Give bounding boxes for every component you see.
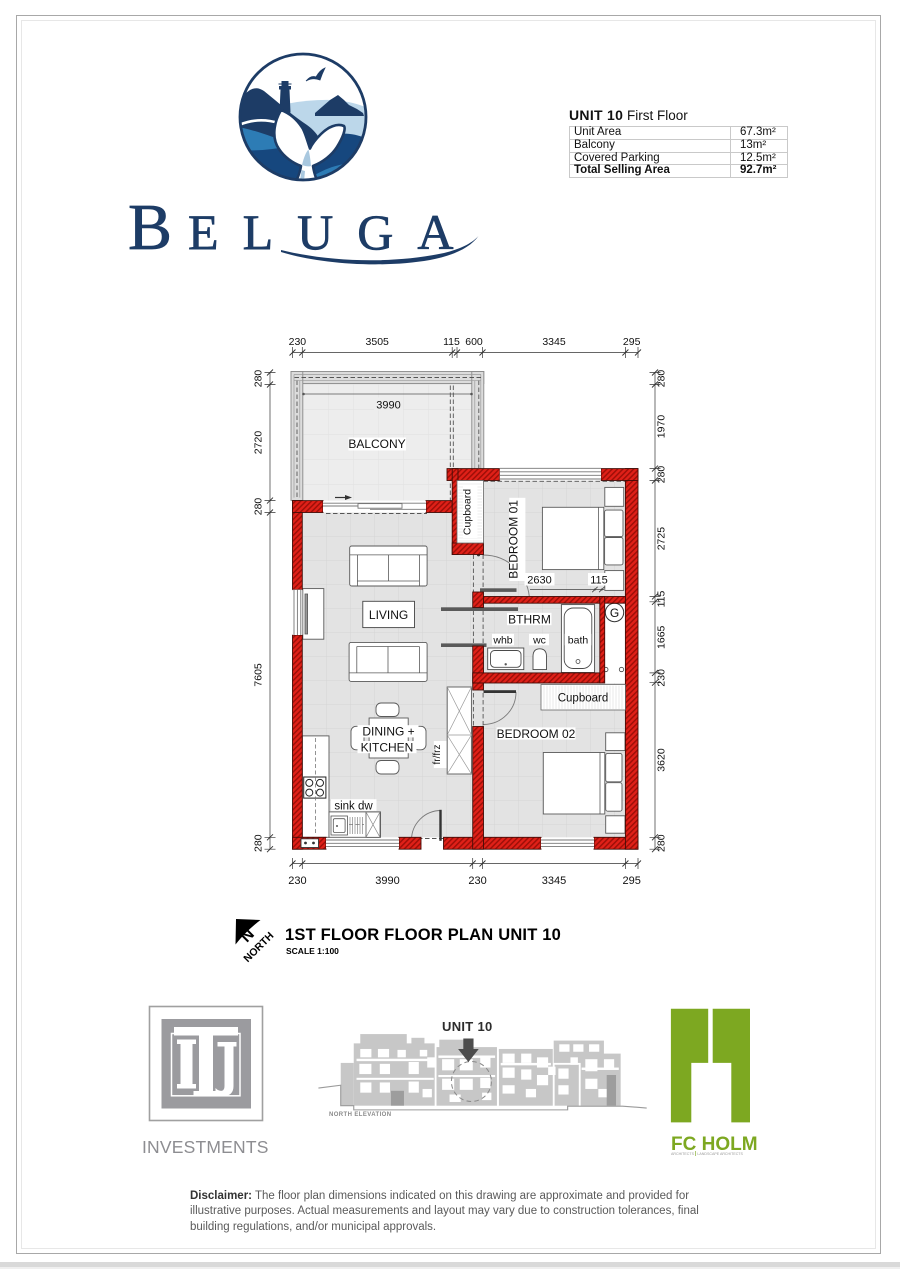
svg-text:3505: 3505 bbox=[366, 336, 390, 348]
svg-text:bath: bath bbox=[568, 635, 589, 647]
svg-text:BTHRM: BTHRM bbox=[508, 612, 551, 626]
svg-text:2720: 2720 bbox=[253, 431, 265, 455]
svg-text:115: 115 bbox=[656, 590, 668, 607]
svg-text:sink dw: sink dw bbox=[334, 801, 373, 813]
svg-text:3345: 3345 bbox=[542, 336, 566, 348]
svg-text:BALCONY: BALCONY bbox=[348, 437, 405, 451]
svg-text:295: 295 bbox=[623, 336, 641, 348]
svg-text:KITCHEN: KITCHEN bbox=[361, 741, 414, 755]
svg-text:Cupboard: Cupboard bbox=[558, 693, 609, 705]
svg-text:280: 280 bbox=[656, 466, 668, 484]
svg-text:1970: 1970 bbox=[656, 415, 668, 439]
svg-text:DINING +: DINING + bbox=[362, 725, 414, 739]
svg-text:BEDROOM 01: BEDROOM 01 bbox=[506, 500, 520, 579]
svg-text:115: 115 bbox=[443, 336, 460, 348]
svg-text:wc: wc bbox=[532, 635, 546, 647]
svg-text:3620: 3620 bbox=[656, 748, 668, 772]
svg-text:230: 230 bbox=[289, 336, 307, 348]
svg-text:Cupboard: Cupboard bbox=[461, 489, 473, 535]
svg-text:LIVING: LIVING bbox=[369, 608, 408, 622]
svg-text:1665: 1665 bbox=[656, 625, 668, 649]
svg-text:280: 280 bbox=[656, 370, 668, 388]
svg-text:whb: whb bbox=[492, 635, 512, 647]
svg-text:280: 280 bbox=[253, 834, 265, 852]
svg-text:BEDROOM 02: BEDROOM 02 bbox=[497, 727, 576, 741]
svg-text:600: 600 bbox=[465, 336, 483, 348]
svg-text:295: 295 bbox=[623, 875, 641, 887]
svg-text:3990: 3990 bbox=[376, 400, 400, 412]
svg-text:G: G bbox=[610, 606, 619, 620]
svg-text:230: 230 bbox=[656, 669, 668, 687]
svg-text:230: 230 bbox=[288, 875, 306, 887]
svg-text:fr/frz: fr/frz bbox=[432, 745, 443, 765]
svg-text:280: 280 bbox=[253, 370, 265, 388]
svg-text:115: 115 bbox=[590, 575, 608, 587]
svg-text:230: 230 bbox=[468, 875, 486, 887]
svg-text:280: 280 bbox=[253, 498, 265, 516]
svg-text:2630: 2630 bbox=[527, 575, 551, 587]
svg-text:280: 280 bbox=[656, 834, 668, 852]
svg-text:3345: 3345 bbox=[542, 875, 566, 887]
svg-text:7605: 7605 bbox=[253, 663, 265, 687]
svg-text:2725: 2725 bbox=[656, 527, 668, 551]
svg-text:3990: 3990 bbox=[375, 875, 399, 887]
